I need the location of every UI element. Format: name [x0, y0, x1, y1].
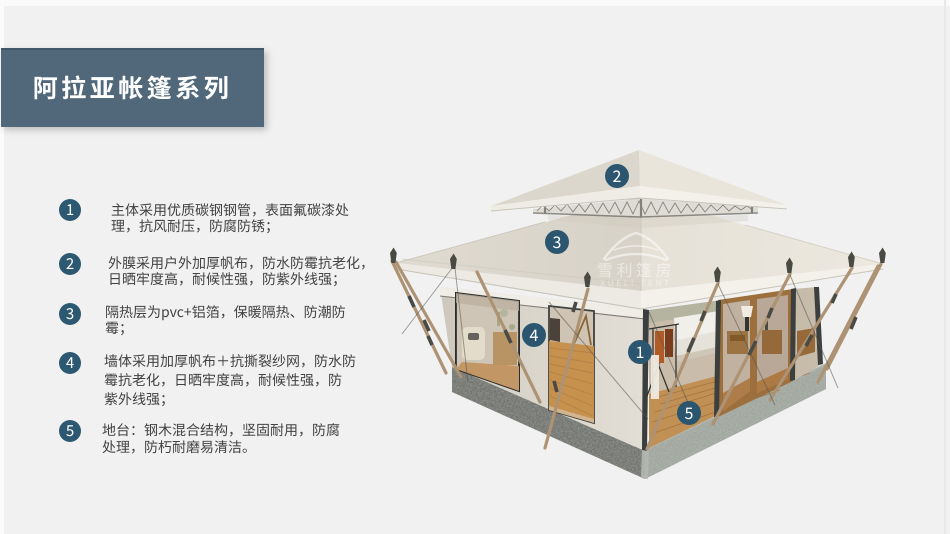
svg-text:XUELI TENT: XUELI TENT	[600, 277, 671, 289]
svg-text:3: 3	[553, 229, 562, 253]
svg-text:4: 4	[530, 322, 539, 346]
svg-text:2: 2	[613, 163, 622, 187]
svg-text:1: 1	[636, 339, 645, 363]
svg-text:5: 5	[685, 400, 694, 424]
